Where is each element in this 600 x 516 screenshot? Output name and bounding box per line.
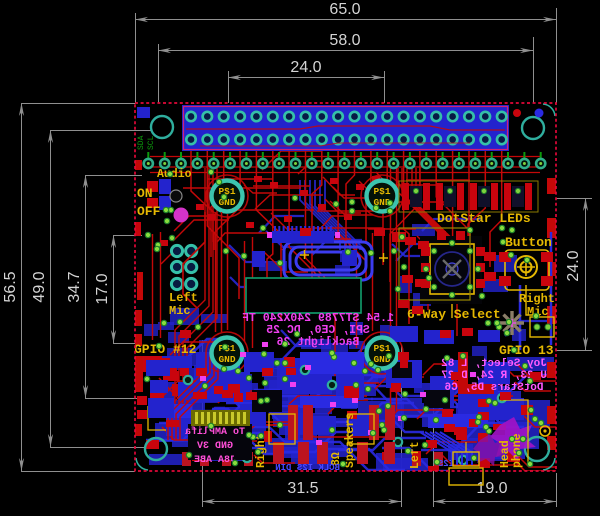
svg-text:Button: Button [505,235,552,250]
svg-text:To AMPlifa: To AMPlifa [185,426,245,438]
svg-text:Right: Right [519,292,555,306]
svg-text:P$1: P$1 [218,186,235,197]
svg-text:J8A ABE: J8A ABE [194,455,236,466]
svg-text:Joy Select, L 82: Joy Select, L 82 [441,358,547,370]
svg-text:24.0: 24.0 [290,59,321,76]
svg-text:Backlight 26: Backlight 26 [277,336,360,349]
svg-text:Left: Left [169,291,198,305]
svg-text:P$1: P$1 [373,186,390,197]
svg-text:65.0: 65.0 [329,1,360,18]
svg-text:49.0: 49.0 [31,271,48,302]
svg-text:GPIO 13: GPIO 13 [499,343,554,358]
svg-text:58.0: 58.0 [329,32,360,49]
svg-text:Speakers: Speakers [344,413,357,468]
svg-text:Left: Left [409,441,422,469]
svg-text:34.7: 34.7 [66,271,83,302]
svg-text:GND: GND [218,354,235,365]
svg-text:ON: ON [137,186,153,201]
svg-text:24.0: 24.0 [565,250,582,281]
svg-text:56.5: 56.5 [2,271,19,302]
svg-text:17.0: 17.0 [94,273,111,304]
svg-text:Mic: Mic [169,304,191,318]
svg-text:DotStar LEDs: DotStar LEDs [437,211,531,226]
svg-text:P$1: P$1 [373,343,390,354]
svg-text:OFF: OFF [137,204,161,219]
svg-text:GND: GND [218,197,235,208]
svg-text:31.5: 31.5 [287,480,318,497]
svg-text:19.0: 19.0 [476,480,507,497]
svg-text:GND 3V: GND 3V [197,441,233,452]
svg-text:SDA: SDA [137,135,146,150]
svg-text:GPIO #12: GPIO #12 [134,342,197,357]
svg-text:SCL: SCL [147,135,156,150]
